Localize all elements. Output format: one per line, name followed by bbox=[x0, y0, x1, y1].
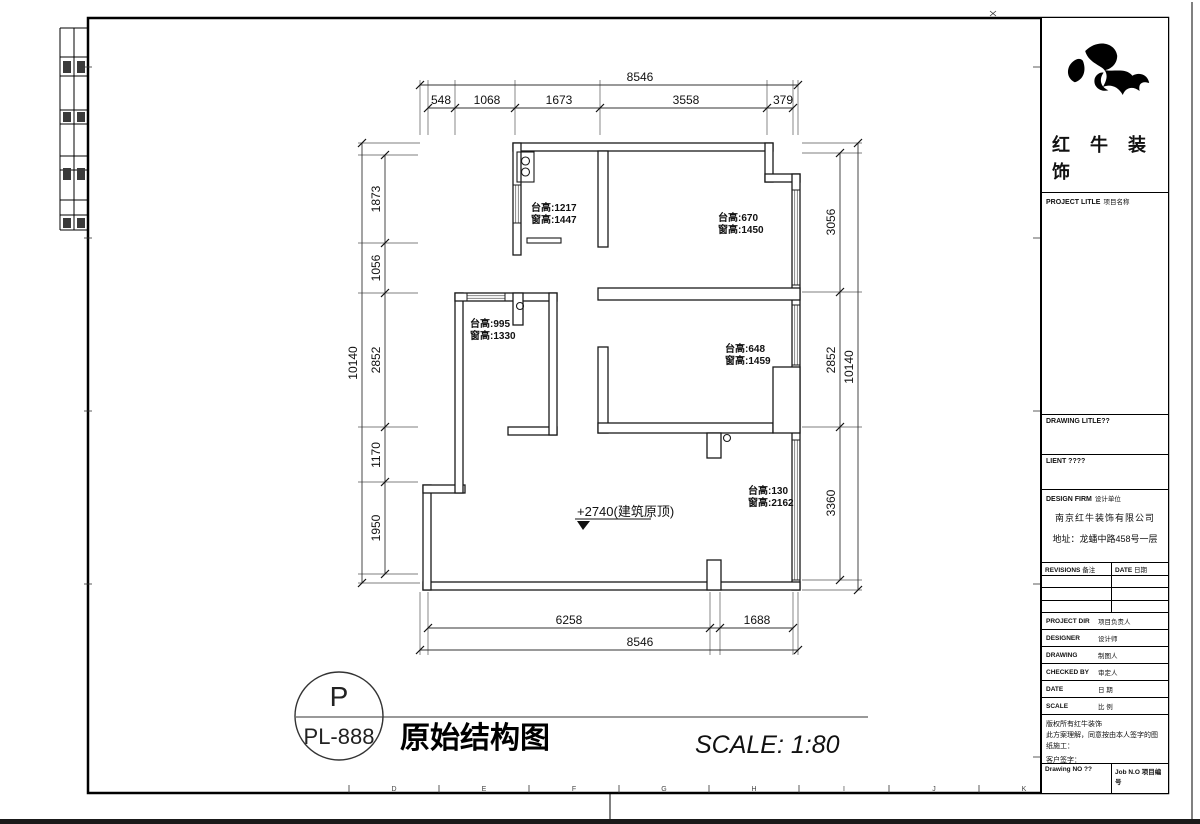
dim-right: 3056 bbox=[824, 208, 838, 235]
dim-bottom: 6258 bbox=[556, 613, 583, 627]
firm-name: 南京红牛装饰有限公司 bbox=[1042, 511, 1168, 524]
dim-left: 1170 bbox=[369, 442, 383, 468]
grid-letter: E bbox=[482, 786, 487, 793]
revisions-label-cn: 备注 bbox=[1082, 567, 1095, 574]
title-block: 红牛装饰 PROJECT LITLE项目名称 DRAWING LITLE?? L… bbox=[1040, 18, 1168, 793]
project-label-cn: 项目名称 bbox=[1103, 199, 1129, 206]
dim-right-total: 10140 bbox=[842, 350, 856, 384]
redniu-bull-logo-icon bbox=[1058, 36, 1154, 114]
dim-top: 379 bbox=[773, 93, 793, 107]
design-firm-cell: DESIGN FIRM设计单位 南京红牛装饰有限公司 地址：龙蟠中路458号一层 bbox=[1042, 490, 1168, 563]
brand-name: 红牛装饰 bbox=[1052, 132, 1166, 186]
project-dir-row: PROJECT DIR项目负责人 bbox=[1042, 613, 1168, 630]
dim-bottom-total: 8546 bbox=[627, 635, 654, 649]
checked-by-row: CHECKED BY审定人 bbox=[1042, 664, 1168, 681]
scale-label: SCALE bbox=[1046, 703, 1098, 710]
revisions-date-label: DATE bbox=[1115, 567, 1132, 574]
grid-letter: G bbox=[661, 786, 666, 793]
dim-bottom: 1688 bbox=[744, 613, 771, 627]
sheet-bottom-bar bbox=[0, 819, 1200, 824]
job-no-label: Job N.O 项目编号 bbox=[1112, 764, 1168, 793]
revisions-empty-row bbox=[1042, 588, 1168, 600]
date-row: DATE日 期 bbox=[1042, 681, 1168, 698]
grid-letter: D bbox=[391, 786, 396, 793]
wall-segment bbox=[455, 293, 557, 301]
annotation-text: 台高:995 bbox=[470, 317, 510, 330]
checked-by-label-cn: 审定人 bbox=[1098, 667, 1118, 677]
dim-top: 3558 bbox=[673, 93, 700, 107]
designer-row: DESIGNER设计师 bbox=[1042, 630, 1168, 647]
grid-letter: K bbox=[1022, 786, 1027, 793]
design-firm-label: DESIGN FIRM bbox=[1046, 496, 1092, 503]
scale-label-cn: 比 例 bbox=[1098, 701, 1113, 711]
grid-letter: F bbox=[572, 786, 576, 793]
wall-segment bbox=[707, 560, 721, 590]
revisions-label: REVISIONS bbox=[1045, 567, 1080, 574]
burner-icon bbox=[522, 157, 530, 165]
revisions-table: REVISIONS 备注 DATE 日期 bbox=[1042, 563, 1168, 613]
grid-letter: J bbox=[932, 786, 936, 793]
client-cell: LIENT ???? bbox=[1042, 455, 1168, 490]
counter-icon bbox=[527, 238, 561, 243]
drawing-label-cn: 制图人 bbox=[1098, 650, 1118, 660]
copyright-line: 版权所有红牛装饰 bbox=[1046, 719, 1164, 730]
wall-segment bbox=[549, 293, 557, 435]
drawing-label: DRAWING bbox=[1046, 652, 1098, 659]
dim-left-total: 10140 bbox=[346, 346, 360, 380]
logo-cell: 红牛装饰 bbox=[1042, 18, 1168, 193]
wall-segment bbox=[598, 151, 608, 247]
dim-top-total: 8546 bbox=[627, 70, 654, 84]
drawing-title: 原始结构图 bbox=[400, 722, 550, 755]
drawing-row: DRAWING制图人 bbox=[1042, 647, 1168, 664]
project-dir-label-cn: 项目负责人 bbox=[1098, 616, 1131, 626]
drawing-scale: SCALE: 1:80 bbox=[695, 731, 840, 759]
sheet-frame bbox=[84, 2, 1192, 824]
annotation-text: 窗高:2162 bbox=[748, 496, 794, 509]
door-hinge-icon bbox=[724, 435, 731, 442]
designer-label-cn: 设计师 bbox=[1098, 633, 1118, 643]
project-dir-label: PROJECT DIR bbox=[1046, 618, 1098, 625]
annotation-text: 窗高:1330 bbox=[470, 329, 516, 342]
wall-segment bbox=[455, 293, 463, 493]
level-triangle-icon bbox=[577, 521, 590, 530]
grid-letter: H bbox=[751, 786, 756, 793]
wall-segment bbox=[423, 485, 431, 590]
wall-segment bbox=[598, 347, 608, 433]
annotation-text: 窗高:1447 bbox=[531, 213, 577, 226]
designer-label: DESIGNER bbox=[1046, 635, 1098, 642]
wall-segment bbox=[423, 582, 800, 590]
project-label: PROJECT LITLE bbox=[1046, 199, 1100, 206]
revisions-empty-row bbox=[1042, 601, 1168, 613]
dim-right: 2852 bbox=[824, 346, 838, 373]
wall-segment bbox=[707, 433, 721, 458]
footer-row: Drawing NO ?? Job N.O 项目编号 bbox=[1042, 764, 1168, 793]
plan-canvas: D E F G H I J K bbox=[0, 0, 1200, 824]
burner-icon bbox=[522, 168, 530, 176]
annotation-text: 台高:670 bbox=[718, 211, 758, 224]
dim-right: 3360 bbox=[824, 489, 838, 516]
scale-row: SCALE比 例 bbox=[1042, 698, 1168, 715]
drawing-sheet: D E F G H I J K bbox=[0, 0, 1200, 824]
wall-segment bbox=[598, 288, 800, 300]
revisions-empty-row bbox=[1042, 576, 1168, 588]
checked-by-label: CHECKED BY bbox=[1046, 669, 1098, 676]
dim-left: 1950 bbox=[369, 514, 383, 541]
dim-top: 1673 bbox=[546, 93, 573, 107]
dim-left: 2852 bbox=[369, 346, 383, 373]
revisions-date-label-cn: 日期 bbox=[1134, 567, 1147, 574]
dim-top: 1068 bbox=[474, 93, 501, 107]
wall-segment bbox=[598, 423, 773, 433]
drawing-title-cell: DRAWING LITLE?? bbox=[1042, 415, 1168, 455]
agreement-line: 此方案理解，同意按由本人签字的图纸施工： bbox=[1046, 730, 1164, 752]
wall-segment bbox=[513, 143, 773, 151]
level-mark-text: +2740(建筑原顶) bbox=[577, 504, 674, 519]
margin-stamp-strip bbox=[60, 28, 88, 230]
dim-left: 1056 bbox=[369, 254, 383, 281]
annotation-text: 台高:1217 bbox=[531, 201, 577, 214]
wall-segment bbox=[773, 367, 800, 433]
grid-letter: I bbox=[843, 786, 845, 793]
date-label: DATE bbox=[1046, 686, 1098, 693]
annotation-text: 台高:648 bbox=[725, 342, 765, 355]
drawing-code: PL-888 bbox=[304, 724, 375, 749]
dim-top: 548 bbox=[431, 93, 451, 107]
dim-left: 1873 bbox=[369, 185, 383, 212]
revisions-header-row: REVISIONS 备注 DATE 日期 bbox=[1042, 563, 1168, 576]
annotation-text: 窗高:1450 bbox=[718, 223, 764, 236]
date-label-cn: 日 期 bbox=[1098, 684, 1113, 694]
design-firm-label-cn: 设计单位 bbox=[1095, 496, 1121, 503]
drawing-titlebar: P PL-888 原始结构图 SCALE: 1:80 bbox=[295, 672, 868, 760]
annotation-text: 台高:130 bbox=[748, 484, 788, 497]
drawing-code-letter: P bbox=[330, 681, 349, 712]
firm-address: 地址：龙蟠中路458号一层 bbox=[1042, 532, 1168, 545]
drawing-title-label: DRAWING LITLE?? bbox=[1046, 418, 1110, 425]
annotation-text: 窗高:1459 bbox=[725, 354, 771, 367]
project-title-cell: PROJECT LITLE项目名称 bbox=[1042, 193, 1168, 415]
client-label: LIENT ???? bbox=[1046, 458, 1085, 465]
level-mark: +2740(建筑原顶) bbox=[575, 504, 674, 530]
drawing-no-label: Drawing NO ?? bbox=[1042, 764, 1112, 793]
copyright-notes: 版权所有红牛装饰 此方案理解，同意按由本人签字的图纸施工： 客户签字： bbox=[1042, 715, 1168, 764]
